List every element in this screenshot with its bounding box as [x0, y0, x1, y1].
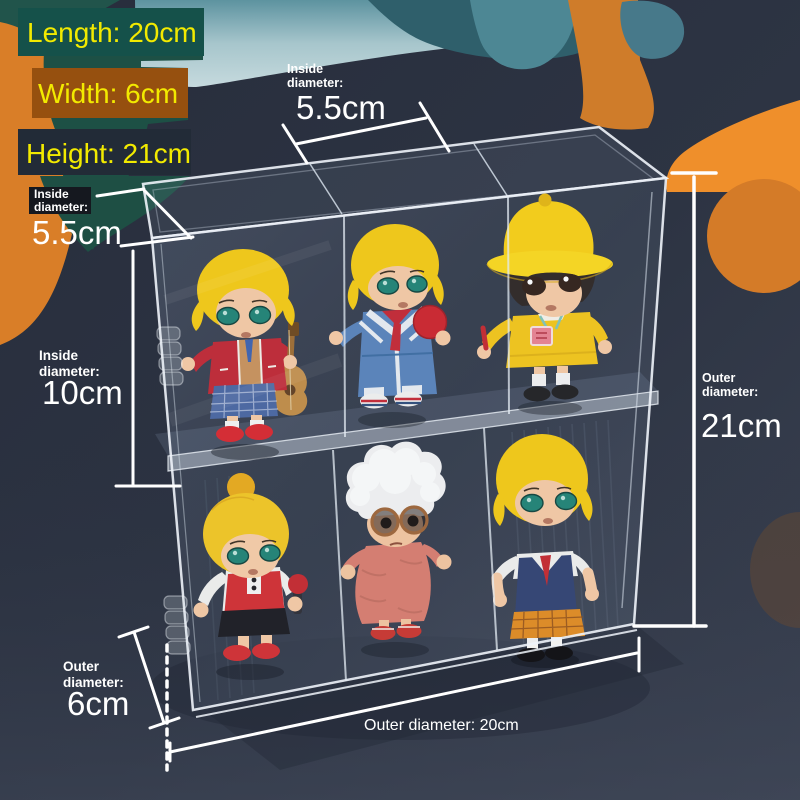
svg-text:Height: 21cm: Height: 21cm	[26, 138, 191, 169]
svg-text:5.5cm: 5.5cm	[32, 214, 122, 251]
svg-text:Inside: Inside	[39, 348, 79, 363]
svg-text:6cm: 6cm	[67, 685, 129, 722]
svg-text:Outer: Outer	[702, 371, 735, 385]
svg-text:10cm: 10cm	[42, 374, 123, 411]
svg-text:Inside: Inside	[287, 62, 323, 76]
svg-text:Length: 20cm: Length: 20cm	[27, 17, 197, 48]
svg-text:diameter:: diameter:	[34, 200, 88, 214]
svg-text:Width: 6cm: Width: 6cm	[38, 78, 178, 109]
svg-text:5.5cm: 5.5cm	[296, 89, 386, 126]
svg-text:diameter:: diameter:	[702, 385, 758, 399]
svg-text:21cm: 21cm	[701, 407, 782, 444]
svg-text:diameter:: diameter:	[287, 76, 343, 90]
svg-text:Outer: Outer	[63, 659, 100, 674]
svg-text:Outer diameter: 20cm: Outer diameter: 20cm	[364, 717, 519, 734]
svg-text:Inside: Inside	[34, 187, 69, 201]
